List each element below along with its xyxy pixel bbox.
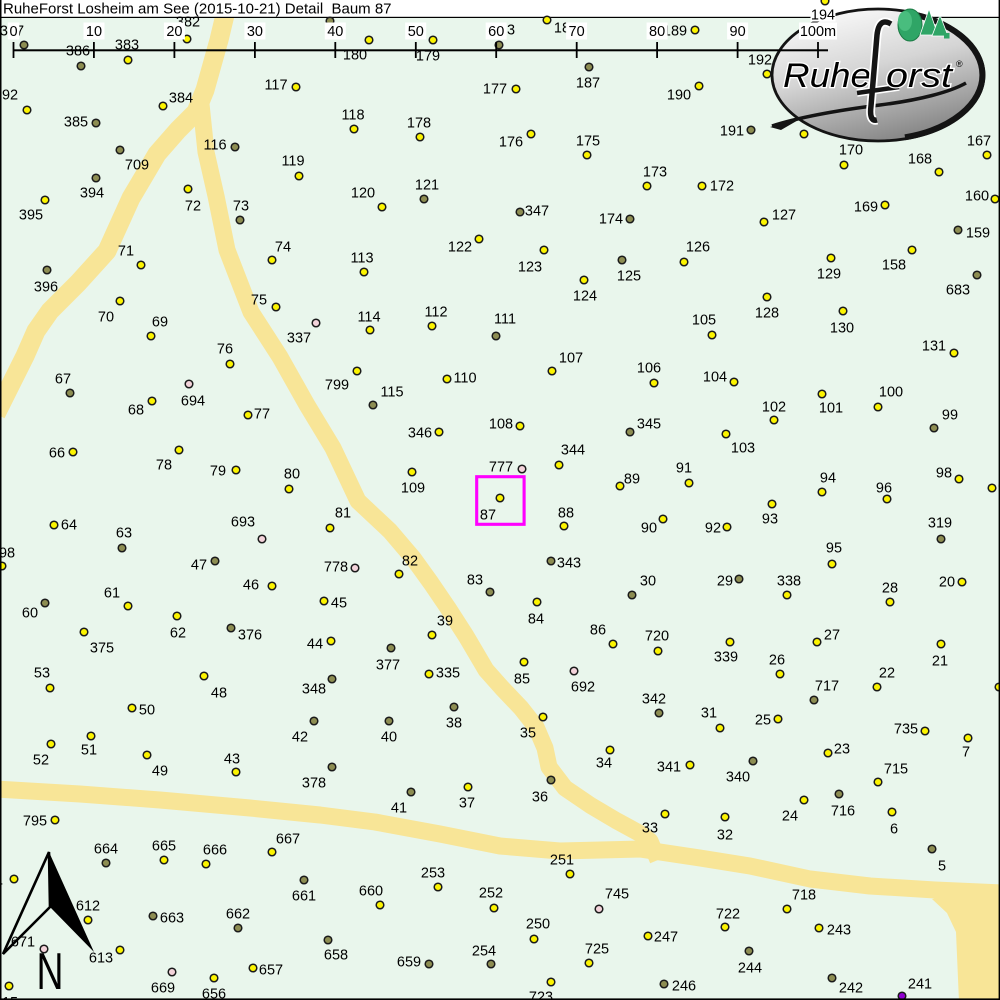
- svg-text:38: 38: [446, 716, 462, 732]
- svg-text:658: 658: [324, 948, 348, 964]
- svg-text:35: 35: [520, 726, 536, 742]
- svg-text:74: 74: [275, 240, 291, 256]
- svg-text:128: 128: [755, 306, 779, 322]
- svg-text:50: 50: [139, 703, 155, 719]
- svg-text:50: 50: [408, 24, 424, 40]
- svg-text:799: 799: [325, 378, 349, 394]
- svg-text:168: 168: [908, 152, 932, 168]
- svg-text:21: 21: [932, 654, 948, 670]
- svg-text:69: 69: [152, 315, 168, 331]
- svg-text:246: 246: [672, 979, 696, 995]
- svg-text:80: 80: [284, 467, 300, 483]
- svg-text:341: 341: [657, 760, 681, 776]
- svg-text:170: 170: [839, 143, 863, 159]
- svg-text:N: N: [37, 943, 64, 1000]
- svg-text:345: 345: [637, 417, 661, 433]
- svg-text:76: 76: [217, 342, 233, 358]
- svg-text:20: 20: [939, 575, 955, 591]
- svg-text:124: 124: [573, 289, 597, 305]
- svg-text:94: 94: [820, 471, 836, 487]
- svg-text:64: 64: [61, 518, 77, 534]
- svg-text:342: 342: [642, 692, 666, 708]
- svg-text:78: 78: [156, 458, 172, 474]
- svg-text:81: 81: [335, 506, 351, 522]
- svg-text:173: 173: [643, 165, 667, 181]
- svg-text:683: 683: [946, 283, 970, 299]
- svg-text:84: 84: [528, 612, 544, 628]
- svg-text:340: 340: [726, 770, 750, 786]
- svg-text:70: 70: [98, 310, 114, 326]
- svg-text:398: 398: [0, 546, 15, 562]
- svg-text:51: 51: [81, 743, 97, 759]
- svg-text:40: 40: [381, 730, 397, 746]
- svg-text:337: 337: [287, 331, 311, 347]
- svg-text:396: 396: [34, 280, 58, 296]
- svg-text:656: 656: [202, 987, 226, 1000]
- svg-text:344: 344: [561, 443, 585, 459]
- svg-text:252: 252: [479, 886, 503, 902]
- svg-text:100m: 100m: [800, 24, 836, 40]
- svg-text:250: 250: [526, 917, 550, 933]
- svg-text:79: 79: [210, 464, 226, 480]
- svg-text:120: 120: [351, 186, 375, 202]
- svg-text:31: 31: [701, 706, 717, 722]
- svg-text:32: 32: [717, 828, 733, 844]
- svg-text:68: 68: [128, 403, 144, 419]
- svg-text:66: 66: [49, 446, 65, 462]
- svg-text:102: 102: [762, 400, 786, 416]
- svg-text:158: 158: [882, 258, 906, 274]
- svg-text:89: 89: [624, 472, 640, 488]
- svg-text:47: 47: [191, 558, 207, 574]
- svg-text:109: 109: [401, 481, 425, 497]
- svg-text:659: 659: [397, 955, 421, 971]
- svg-text:177: 177: [483, 82, 507, 98]
- svg-text:169: 169: [854, 200, 878, 216]
- svg-text:49: 49: [152, 764, 168, 780]
- svg-text:101: 101: [819, 401, 843, 417]
- svg-text:777: 777: [489, 460, 513, 476]
- svg-text:23: 23: [834, 742, 850, 758]
- svg-text:92: 92: [705, 521, 721, 537]
- svg-text:778: 778: [324, 560, 348, 576]
- svg-text:110: 110: [453, 371, 476, 387]
- svg-text:30: 30: [247, 24, 263, 40]
- svg-text:694: 694: [181, 394, 205, 410]
- svg-text:319: 319: [928, 516, 952, 532]
- svg-text:715: 715: [884, 762, 908, 778]
- svg-text:60: 60: [22, 606, 38, 622]
- svg-text:90: 90: [641, 521, 657, 537]
- svg-text:22: 22: [879, 666, 895, 682]
- svg-text:253: 253: [421, 866, 445, 882]
- svg-text:667: 667: [276, 832, 300, 848]
- svg-text:114: 114: [357, 310, 380, 326]
- svg-text:61: 61: [104, 586, 120, 602]
- svg-text:194: 194: [811, 8, 835, 24]
- svg-text:112: 112: [424, 305, 447, 321]
- svg-text:385: 385: [64, 115, 88, 131]
- svg-text:722: 722: [716, 907, 740, 923]
- svg-text:48: 48: [211, 686, 227, 702]
- svg-text:98: 98: [936, 466, 952, 482]
- svg-text:52: 52: [33, 753, 49, 769]
- svg-text:orst: orst: [886, 57, 954, 95]
- svg-text:60: 60: [488, 24, 504, 40]
- svg-text:175: 175: [576, 134, 600, 150]
- svg-text:692: 692: [571, 680, 595, 696]
- svg-text:0: 0: [9, 24, 17, 40]
- svg-text:190: 190: [667, 88, 691, 104]
- svg-text:27: 27: [824, 628, 840, 644]
- svg-text:63: 63: [116, 526, 132, 542]
- svg-text:46: 46: [243, 578, 259, 594]
- svg-text:384: 384: [169, 91, 193, 107]
- svg-text:37: 37: [459, 796, 475, 812]
- svg-text:716: 716: [831, 804, 855, 820]
- svg-text:24: 24: [782, 809, 798, 825]
- svg-text:33: 33: [642, 821, 658, 837]
- svg-text:346: 346: [408, 426, 432, 442]
- svg-text:45: 45: [331, 596, 347, 612]
- svg-text:96: 96: [876, 481, 892, 497]
- svg-text:339: 339: [714, 650, 738, 666]
- svg-text:29: 29: [717, 574, 733, 590]
- svg-text:44: 44: [307, 637, 323, 653]
- svg-text:160: 160: [965, 189, 989, 205]
- svg-text:392: 392: [0, 88, 18, 104]
- svg-text:26: 26: [769, 653, 785, 669]
- svg-text:82: 82: [402, 554, 418, 570]
- svg-text:105: 105: [692, 313, 716, 329]
- svg-text:28: 28: [882, 581, 898, 597]
- svg-text:657: 657: [259, 963, 283, 979]
- svg-text:243: 243: [827, 923, 851, 939]
- svg-text:661: 661: [292, 889, 316, 905]
- svg-text:107: 107: [559, 351, 583, 367]
- svg-text:660: 660: [359, 884, 383, 900]
- svg-text:159: 159: [966, 226, 990, 242]
- svg-text:127: 127: [772, 208, 796, 224]
- svg-text:67: 67: [55, 372, 71, 388]
- svg-text:42: 42: [292, 730, 308, 746]
- svg-text:386: 386: [66, 44, 90, 60]
- svg-text:663: 663: [160, 911, 184, 927]
- svg-text:5: 5: [938, 859, 946, 875]
- svg-text:111: 111: [494, 312, 516, 328]
- svg-text:87: 87: [480, 508, 496, 524]
- svg-text:395: 395: [19, 208, 43, 224]
- svg-text:191: 191: [720, 124, 744, 140]
- svg-text:129: 129: [817, 267, 841, 283]
- svg-text:106: 106: [637, 361, 661, 377]
- svg-text:130: 130: [830, 321, 854, 337]
- svg-text:77: 77: [254, 407, 270, 423]
- svg-text:338: 338: [777, 574, 801, 590]
- svg-text:664: 664: [94, 842, 118, 858]
- svg-text:348: 348: [302, 682, 326, 698]
- svg-text:335: 335: [436, 666, 460, 682]
- svg-text:116: 116: [203, 138, 226, 154]
- svg-text:343: 343: [557, 556, 581, 572]
- svg-text:90: 90: [730, 24, 746, 40]
- svg-text:34: 34: [596, 756, 612, 772]
- svg-text:95: 95: [826, 541, 842, 557]
- svg-text:376: 376: [238, 628, 262, 644]
- svg-text:123: 123: [518, 260, 542, 276]
- svg-text:247: 247: [654, 930, 678, 946]
- svg-text:662: 662: [226, 907, 250, 923]
- svg-text:73: 73: [233, 199, 249, 215]
- svg-text:83: 83: [467, 573, 483, 589]
- svg-text:613: 613: [89, 951, 113, 967]
- svg-text:103: 103: [731, 441, 755, 457]
- svg-text:39: 39: [437, 614, 453, 630]
- svg-text:735: 735: [894, 722, 918, 738]
- svg-text:80: 80: [649, 24, 665, 40]
- svg-text:244: 244: [738, 961, 762, 977]
- svg-text:612: 612: [76, 899, 100, 915]
- svg-text:131: 131: [922, 339, 946, 355]
- svg-text:7: 7: [962, 745, 970, 761]
- svg-text:6: 6: [890, 822, 898, 838]
- svg-text:795: 795: [23, 814, 47, 830]
- svg-text:669: 669: [151, 981, 175, 997]
- svg-text:20: 20: [166, 24, 182, 40]
- svg-text:75: 75: [251, 293, 267, 309]
- svg-text:40: 40: [327, 24, 343, 40]
- svg-text:375: 375: [90, 641, 114, 657]
- svg-text:113: 113: [350, 251, 373, 267]
- svg-text:10: 10: [86, 24, 102, 40]
- svg-text:709: 709: [125, 158, 149, 174]
- svg-text:167: 167: [967, 134, 991, 150]
- svg-text:187: 187: [576, 76, 600, 92]
- svg-text:394: 394: [80, 186, 104, 202]
- svg-text:115: 115: [380, 385, 403, 401]
- svg-text:119: 119: [281, 154, 304, 170]
- svg-text:174: 174: [599, 212, 623, 228]
- svg-text:85: 85: [514, 672, 530, 688]
- svg-text:43: 43: [224, 752, 240, 768]
- svg-text:178: 178: [407, 116, 431, 132]
- svg-text:122: 122: [448, 240, 472, 256]
- svg-text:378: 378: [302, 776, 326, 792]
- svg-text:99: 99: [942, 408, 958, 424]
- svg-text:251: 251: [550, 853, 574, 869]
- svg-text:62: 62: [170, 626, 186, 642]
- svg-text:117: 117: [264, 78, 287, 94]
- svg-text:25: 25: [755, 713, 771, 729]
- svg-text:36: 36: [532, 790, 548, 806]
- svg-text:745: 745: [605, 887, 629, 903]
- svg-text:717: 717: [815, 679, 839, 695]
- svg-text:72: 72: [185, 199, 201, 215]
- svg-text:41: 41: [391, 801, 407, 817]
- svg-text:125: 125: [617, 269, 641, 285]
- svg-text:176: 176: [499, 135, 523, 151]
- svg-text:126: 126: [686, 240, 710, 256]
- svg-text:88: 88: [558, 506, 574, 522]
- svg-text:®: ®: [956, 59, 963, 69]
- svg-text:100: 100: [879, 385, 903, 401]
- svg-text:241: 241: [908, 977, 932, 993]
- svg-text:53: 53: [34, 666, 50, 682]
- svg-text:192: 192: [748, 53, 772, 69]
- svg-text:91: 91: [676, 461, 692, 477]
- svg-text:665: 665: [152, 839, 176, 855]
- svg-text:347: 347: [525, 204, 549, 220]
- svg-text:666: 666: [203, 843, 227, 859]
- svg-text:104: 104: [703, 370, 727, 386]
- svg-text:118: 118: [341, 108, 364, 124]
- svg-text:172: 172: [710, 179, 734, 195]
- svg-text:693: 693: [231, 515, 255, 531]
- svg-text:718: 718: [792, 888, 816, 904]
- svg-text:86: 86: [590, 623, 606, 639]
- svg-text:377: 377: [376, 658, 400, 674]
- svg-text:242: 242: [839, 981, 863, 997]
- svg-text:93: 93: [762, 512, 778, 528]
- svg-text:30: 30: [640, 574, 656, 590]
- svg-text:71: 71: [118, 244, 134, 260]
- svg-text:70: 70: [569, 24, 585, 40]
- svg-text:720: 720: [645, 629, 669, 645]
- svg-text:725: 725: [585, 942, 609, 958]
- svg-text:121: 121: [415, 178, 439, 194]
- svg-text:108: 108: [489, 417, 513, 433]
- svg-text:254: 254: [472, 944, 496, 960]
